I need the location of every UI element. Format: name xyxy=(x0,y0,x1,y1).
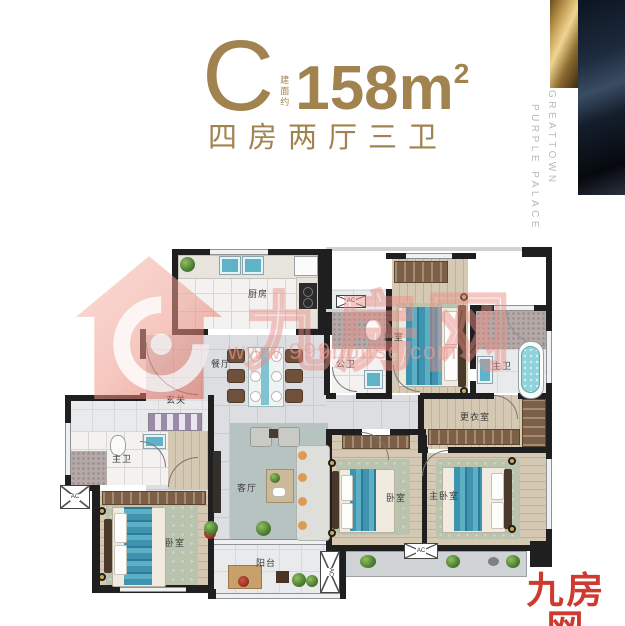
pillow xyxy=(114,513,127,543)
plant xyxy=(204,521,218,535)
flower-pot xyxy=(238,576,249,587)
master-bath-side-window xyxy=(546,331,552,383)
wall-lamp xyxy=(508,457,516,465)
stone-decor xyxy=(488,557,499,566)
plant xyxy=(506,555,520,568)
wall xyxy=(386,393,392,399)
area-superscript: 2 xyxy=(454,58,470,90)
wall-lamp xyxy=(98,573,106,581)
layout-subtitle: 四房两厅三卫 xyxy=(208,114,448,156)
sofa-cushion xyxy=(298,451,307,460)
ac-unit: AC xyxy=(320,551,340,593)
tray xyxy=(272,487,286,497)
sofa-cushion xyxy=(298,521,307,530)
wall xyxy=(418,447,428,453)
plant xyxy=(360,555,376,568)
bed-headboard xyxy=(504,469,512,529)
side-text-great-town: GREATTOWN xyxy=(546,90,557,210)
dining-chair xyxy=(285,389,303,403)
wall xyxy=(530,541,552,567)
plate xyxy=(250,391,261,402)
watermark-url-text: www.999house.com xyxy=(228,338,458,365)
dining-chair xyxy=(227,389,245,403)
area-value: 158m xyxy=(295,62,454,116)
side-table xyxy=(269,429,278,438)
hallway-floor xyxy=(326,395,418,429)
unit-type-letter: C xyxy=(202,36,274,116)
ac-unit: AC xyxy=(60,485,90,509)
room-label-living: 客厅 xyxy=(237,481,257,494)
bed-headboard xyxy=(104,519,112,573)
floorplan-page: C 建面约 158m 2 四房两厅三卫 GREATTOWN PURPLE PAL… xyxy=(0,0,625,626)
watermark-brand-text: 九房网 xyxy=(245,262,515,387)
wall xyxy=(208,589,216,599)
ac-label: AC xyxy=(326,568,335,576)
plant xyxy=(446,555,460,568)
ac-label: AC xyxy=(416,548,426,555)
pillow xyxy=(491,502,504,529)
unit-title: C 建面约 158m 2 xyxy=(202,36,469,116)
bedroom-top-window xyxy=(406,253,452,259)
wardrobe xyxy=(522,399,546,447)
room-label-master-bedroom: 主卧室 xyxy=(429,489,459,502)
ac-unit: AC xyxy=(404,543,438,559)
wall xyxy=(326,393,336,399)
side-text-purple-palace: PURPLE PALACE xyxy=(529,104,540,244)
room-label-bedroom-mid: 卧室 xyxy=(386,491,406,504)
decor-image-dark-silk xyxy=(578,0,625,195)
plant xyxy=(270,473,280,483)
bedroom-left-window xyxy=(120,587,186,592)
brand-logo: 九房网 www.999house.com xyxy=(508,572,625,626)
room-label-bedroom-left: 卧室 xyxy=(165,536,185,549)
area-prefix-label: 建面约 xyxy=(278,75,291,108)
balcony-rail-window xyxy=(214,593,346,599)
armchair xyxy=(278,427,300,447)
wall-lamp xyxy=(508,525,516,533)
pillow xyxy=(341,475,353,501)
ac-label: AC xyxy=(70,494,80,501)
wardrobe xyxy=(102,491,206,505)
sofa-cushion xyxy=(298,497,307,506)
room-label-closet: 更衣室 xyxy=(460,410,490,423)
bed-blanket xyxy=(350,469,376,531)
plant xyxy=(306,575,318,587)
pillow xyxy=(114,545,127,575)
shoe-cabinet xyxy=(148,413,202,431)
wall-lamp xyxy=(98,507,106,515)
plant xyxy=(256,521,271,536)
decor-image-gold-silk xyxy=(550,0,578,88)
dining-chair xyxy=(227,369,245,383)
wall xyxy=(448,447,548,453)
suite-bath-shower-floor xyxy=(71,451,107,485)
sofa-cushion xyxy=(298,473,307,482)
pillow xyxy=(341,503,353,529)
room-label-suite-bath: 主卫 xyxy=(112,452,132,465)
plant xyxy=(292,573,306,587)
watermark-house-icon xyxy=(73,250,225,402)
bed-headboard xyxy=(332,471,339,529)
pillow xyxy=(491,473,504,500)
tv-console xyxy=(213,451,221,513)
bathtub-water xyxy=(521,346,540,393)
wall-lamp xyxy=(328,529,336,537)
wardrobe xyxy=(428,429,520,445)
room-label-balcony: 阳台 xyxy=(256,556,276,569)
master-bedroom-window xyxy=(546,459,552,529)
wall xyxy=(326,247,552,251)
wall-lamp xyxy=(328,459,336,467)
bed-blanket xyxy=(124,507,152,585)
wall xyxy=(470,393,494,399)
brand-logo-text: 九房网 xyxy=(508,572,625,626)
plate xyxy=(271,391,282,402)
wall-lamp xyxy=(460,387,468,395)
wall xyxy=(418,395,424,453)
balcony-stool xyxy=(276,571,289,583)
wall xyxy=(340,545,346,599)
suite-bath-window xyxy=(65,423,71,475)
